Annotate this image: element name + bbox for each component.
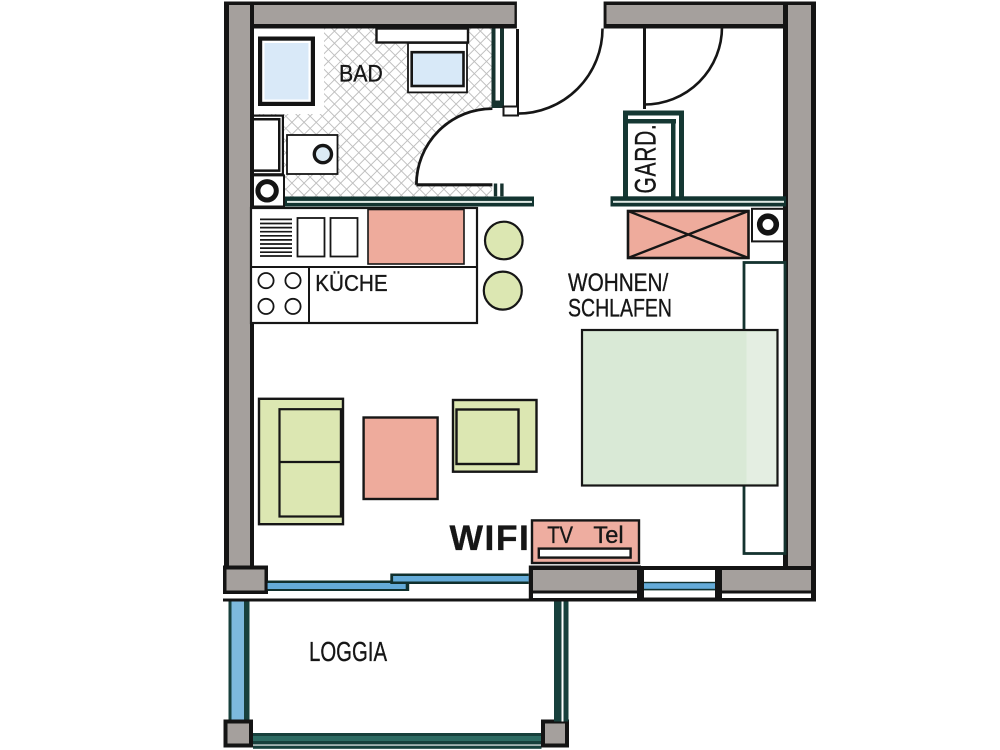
svg-text:Tel: Tel xyxy=(593,522,623,549)
svg-text:BAD: BAD xyxy=(339,59,383,87)
svg-text:WIFI: WIFI xyxy=(450,518,531,558)
svg-text:TV: TV xyxy=(547,521,573,548)
svg-text:GARD.: GARD. xyxy=(630,124,662,194)
svg-text:KÜCHE: KÜCHE xyxy=(315,270,387,296)
svg-text:LOGGIA: LOGGIA xyxy=(309,637,388,668)
svg-text:SCHLAFEN: SCHLAFEN xyxy=(568,294,672,322)
svg-text:WOHNEN/: WOHNEN/ xyxy=(568,268,669,296)
